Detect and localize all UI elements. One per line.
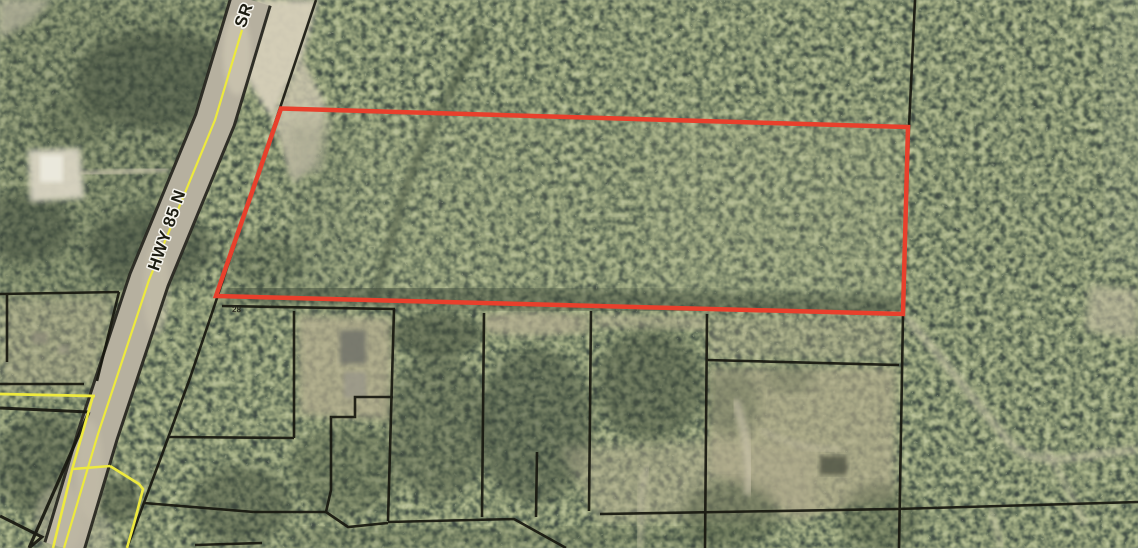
- svg-text:28: 28: [232, 305, 242, 314]
